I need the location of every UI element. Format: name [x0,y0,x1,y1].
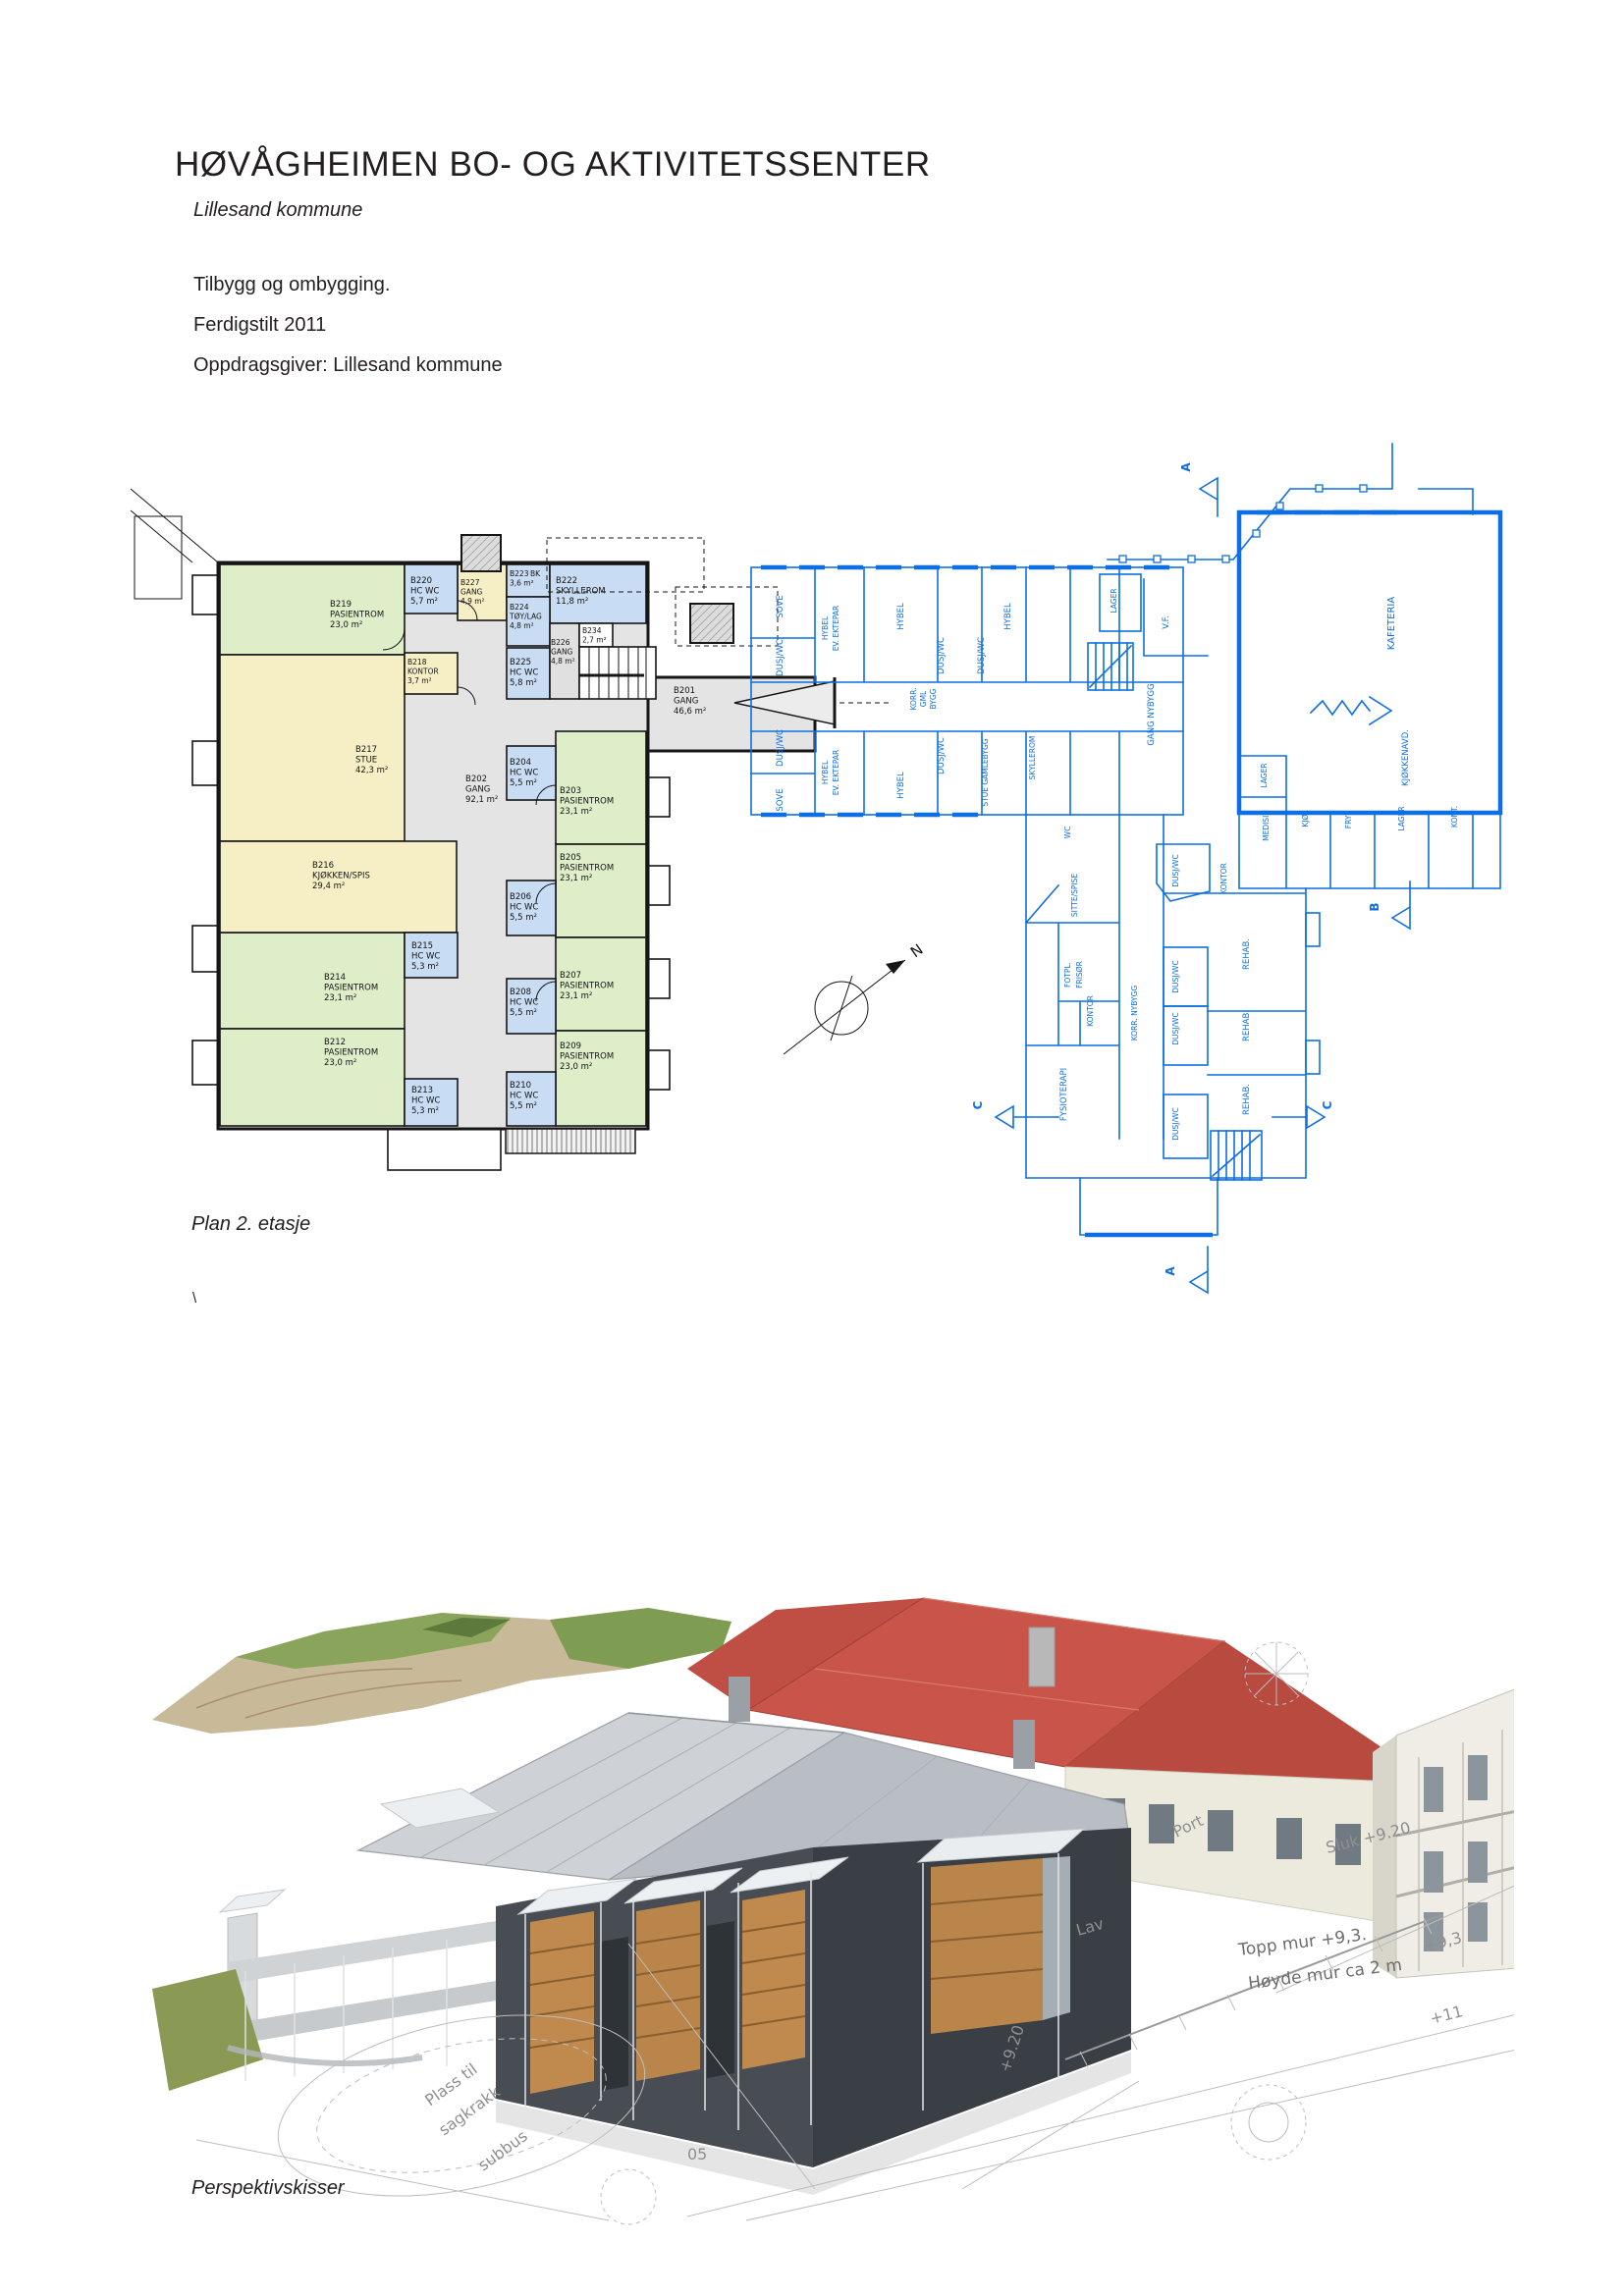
svg-text:B222: B222 [556,576,577,586]
svg-text:STUE: STUE [355,756,377,766]
svg-text:SKYLLEROM: SKYLLEROM [1028,736,1037,780]
svg-text:B234: B234 [582,626,602,635]
svg-text:FOTPL.: FOTPL. [1063,962,1072,988]
west-balconies [192,575,218,1085]
svg-text:B210: B210 [510,1081,531,1091]
svg-text:5,5 m²: 5,5 m² [510,1008,537,1018]
kafeteria-room [1239,512,1500,813]
svg-text:HYBEL: HYBEL [896,772,906,799]
svg-text:B202: B202 [465,774,487,784]
staircase [579,647,656,699]
svg-text:DUSJ/WC: DUSJ/WC [776,729,785,767]
svg-text:5,7 m²: 5,7 m² [410,597,438,607]
svg-text:FYSIOTERAPI: FYSIOTERAPI [1059,1068,1069,1121]
north-arrow: N [784,940,926,1054]
room-b214 [220,933,405,1029]
svg-text:HC WC: HC WC [411,952,440,962]
svg-text:B218: B218 [407,658,427,667]
svg-text:5,3 m²: 5,3 m² [411,1106,439,1116]
svg-text:HYBEL: HYBEL [896,603,906,630]
svg-text:HC WC: HC WC [510,903,538,913]
svg-text:GANG: GANG [460,588,483,597]
svg-text:KAFETERIA: KAFETERIA [1386,597,1397,651]
svg-text:46,6 m²: 46,6 m² [674,707,706,717]
svg-text:LAGER: LAGER [1110,588,1118,613]
svg-text:KONT.: KONT. [1450,806,1459,828]
svg-text:DUSJ/WC: DUSJ/WC [977,637,987,674]
svg-text:MEDISIN: MEDISIN [1262,810,1271,841]
svg-text:B219: B219 [330,600,352,610]
elevator-shaft [461,535,501,571]
svg-text:HYBEL: HYBEL [1003,603,1013,630]
svg-text:B217: B217 [355,745,377,755]
svg-text:SKYLLEROM: SKYLLEROM [556,587,606,597]
svg-text:42,3 m²: 42,3 m² [355,766,388,775]
svg-text:SOVE: SOVE [776,788,785,811]
svg-text:GANG NYBYGG: GANG NYBYGG [1147,683,1157,745]
svg-text:KORR.: KORR. [909,688,918,711]
main-building [152,1677,1131,2195]
page-subtitle: Lillesand kommune [193,199,362,222]
svg-text:GML: GML [919,690,928,707]
chimney [729,1677,750,1722]
svg-text:B227: B227 [460,578,480,587]
svg-text:23,1 m²: 23,1 m² [560,991,592,1001]
plan-caption: Plan 2. etasje [191,1213,310,1236]
svg-text:HC WC: HC WC [510,769,538,778]
svg-text:HC WC: HC WC [510,998,538,1008]
existing-building-plan [751,444,1500,1235]
adjacent-structure-lines [131,489,218,599]
svg-text:TØY/LAG: TØY/LAG [509,613,542,621]
portfolio-page: HØVÅGHEIMEN BO- OG AKTIVITETSSENTER Lill… [0,0,1624,2296]
svg-text:GANG: GANG [674,697,698,707]
svg-text:23,1 m²: 23,1 m² [560,807,592,817]
annotation-hoyde-mur: Høyde mur ca 2 m [1247,1955,1403,1994]
svg-text:5,3 m²: 5,3 m² [411,962,439,972]
annotation-number: 05 [687,2145,707,2163]
svg-text:KONTOR: KONTOR [1086,995,1095,1027]
svg-text:STUE GAMLEBYGG: STUE GAMLEBYGG [981,738,990,806]
svg-text:HYBEL: HYBEL [821,760,830,784]
svg-text:C: C [1321,1100,1334,1109]
description-line-2: Ferdigstilt 2011 [193,305,503,346]
new-wing-plan [192,535,889,1170]
perspective-caption: Perspektivskisser [191,2177,345,2200]
svg-text:B220: B220 [410,576,432,586]
svg-text:5,5 m²: 5,5 m² [510,913,537,923]
svg-text:DUSJ/WC: DUSJ/WC [776,639,785,676]
svg-text:BYGG: BYGG [929,688,938,709]
svg-text:B209: B209 [560,1041,581,1051]
svg-text:HC WC: HC WC [410,587,439,597]
svg-text:B: B [1368,902,1381,911]
svg-text:EV. EKTEPAR: EV. EKTEPAR [832,606,840,651]
svg-text:B226: B226 [551,638,570,647]
room-b212 [220,1029,405,1126]
project-description: Tilbygg og ombygging. Ferdigstilt 2011 O… [193,265,503,386]
svg-text:REHAB.: REHAB. [1242,1084,1252,1115]
svg-text:GANG: GANG [465,785,490,795]
svg-text:EV. EKTEPAR: EV. EKTEPAR [832,750,840,795]
svg-text:B205: B205 [560,853,581,863]
svg-text:23,0 m²: 23,0 m² [330,620,362,630]
svg-text:5,8 m²: 5,8 m² [510,678,537,688]
svg-text:2,7 m²: 2,7 m² [582,636,607,645]
svg-text:B225: B225 [510,658,531,667]
svg-text:PASIENTROM: PASIENTROM [330,611,384,620]
svg-text:92,1 m²: 92,1 m² [465,795,498,805]
existing-building-labels: SOVE DUSJ/WC HYBEL EV. EKTEPAR HYBEL DUS… [776,588,1459,1140]
svg-text:B201: B201 [674,686,695,696]
svg-text:PASIENTROM: PASIENTROM [560,864,614,874]
svg-text:HYBEL: HYBEL [821,615,830,640]
perspective-rendering: Port Sluk +9.20 +9,3 +11 Lav +9.20 05 To… [128,1571,1514,2238]
svg-text:B214: B214 [324,973,346,983]
svg-text:A: A [1164,1266,1177,1276]
lower-staircase [1211,1131,1262,1180]
svg-text:HC WC: HC WC [411,1096,440,1106]
svg-text:WC: WC [1063,827,1072,839]
svg-text:C: C [971,1100,985,1109]
north-letter: N [907,940,927,961]
elevator-shaft [690,604,733,643]
svg-text:11,8 m²: 11,8 m² [556,597,588,607]
floor-plan-drawing: B219PASIENTROM23,0 m² B220HC WC5,7 m² B2… [128,442,1514,1306]
svg-text:SOVE: SOVE [776,595,785,617]
svg-text:3,7 m²: 3,7 m² [407,676,432,685]
chimney [1029,1628,1055,1686]
svg-text:DUSJ/WC: DUSJ/WC [1171,854,1180,886]
svg-text:KORR. NYBYGG: KORR. NYBYGG [1130,986,1139,1041]
svg-text:23,1 m²: 23,1 m² [324,993,356,1003]
svg-text:V.F.: V.F. [1162,615,1171,629]
svg-text:B208: B208 [510,988,531,997]
svg-text:DUSJ/WC: DUSJ/WC [1171,960,1180,992]
svg-text:4,8 m²: 4,8 m² [510,621,534,630]
svg-text:5,5 m²: 5,5 m² [510,1101,537,1111]
svg-text:HC WC: HC WC [510,1092,538,1101]
chimney [1013,1720,1035,1769]
svg-text:5,5 m²: 5,5 m² [510,778,537,788]
annotation-topp-mur: Topp mur +9,3. [1236,1925,1368,1960]
svg-text:LAGER: LAGER [1260,763,1269,787]
svg-text:REHAB.: REHAB. [1242,938,1252,970]
svg-text:HC WC: HC WC [510,668,538,678]
section-marks: A A B C C [971,462,1410,1293]
svg-text:B204: B204 [510,758,531,768]
svg-text:KJØL: KJØL [1301,810,1310,828]
svg-text:KONTOR: KONTOR [1219,863,1228,894]
svg-text:KONTOR: KONTOR [407,667,439,676]
svg-text:KJØKKENAVD.: KJØKKENAVD. [1400,729,1411,786]
svg-text:23,1 m²: 23,1 m² [560,874,592,883]
description-line-1: Tilbygg og ombygging. [193,265,503,305]
svg-text:LAGER: LAGER [1397,806,1406,830]
svg-text:PASIENTROM: PASIENTROM [560,1052,614,1062]
svg-text:DUSJ/WC: DUSJ/WC [1171,1012,1180,1044]
south-terrace [388,1129,635,1170]
svg-text:PASIENTROM: PASIENTROM [560,982,614,991]
svg-text:FRYS: FRYS [1344,811,1353,829]
svg-text:B215: B215 [411,941,433,951]
annotation-subbus: subbus [474,2126,530,2174]
svg-text:3,6 m²: 3,6 m² [510,579,534,588]
stray-mark: \ [192,1290,196,1307]
svg-text:B207: B207 [560,971,581,981]
svg-text:PASIENTROM: PASIENTROM [324,1048,378,1058]
entrance-protrusion [1080,1178,1218,1235]
svg-text:BK: BK [530,569,541,578]
svg-text:B203: B203 [560,786,581,796]
svg-text:PASIENTROM: PASIENTROM [560,797,614,807]
page-title: HØVÅGHEIMEN BO- OG AKTIVITETSSENTER [175,145,931,185]
svg-text:FRISØR: FRISØR [1075,961,1084,988]
svg-text:SITTE/SPISE: SITTE/SPISE [1070,874,1079,918]
svg-text:B216: B216 [312,861,334,871]
svg-text:B212: B212 [324,1038,346,1047]
svg-text:DUSJ/WC: DUSJ/WC [937,637,947,674]
annotation-level: +11 [1428,2002,1464,2028]
svg-text:DUSJ/WC: DUSJ/WC [937,737,947,774]
svg-text:KJØKKEN/SPIS: KJØKKEN/SPIS [312,871,370,881]
svg-text:GANG: GANG [551,648,573,657]
svg-text:B223: B223 [510,569,529,578]
svg-text:B206: B206 [510,892,531,902]
colonnade-columns [1119,485,1367,562]
svg-text:REHAB.: REHAB. [1242,1010,1252,1041]
lager-room [1100,574,1141,631]
svg-text:PASIENTROM: PASIENTROM [324,984,378,993]
door-zigzag-symbol [1311,697,1391,724]
svg-text:4,8 m²: 4,8 m² [551,657,575,666]
svg-text:23,0 m²: 23,0 m² [324,1058,356,1068]
svg-text:B213: B213 [411,1086,433,1095]
svg-text:29,4 m²: 29,4 m² [312,881,345,891]
east-balcony-doors [648,777,670,1090]
svg-text:B224: B224 [510,603,529,612]
description-line-3: Oppdragsgiver: Lillesand kommune [193,346,503,386]
svg-text:A: A [1179,462,1193,472]
svg-text:4,9 m²: 4,9 m² [460,597,485,606]
left-annex-walkways [152,1890,496,2091]
svg-text:23,0 m²: 23,0 m² [560,1062,592,1072]
svg-text:DUSJ/WC: DUSJ/WC [1171,1107,1180,1140]
